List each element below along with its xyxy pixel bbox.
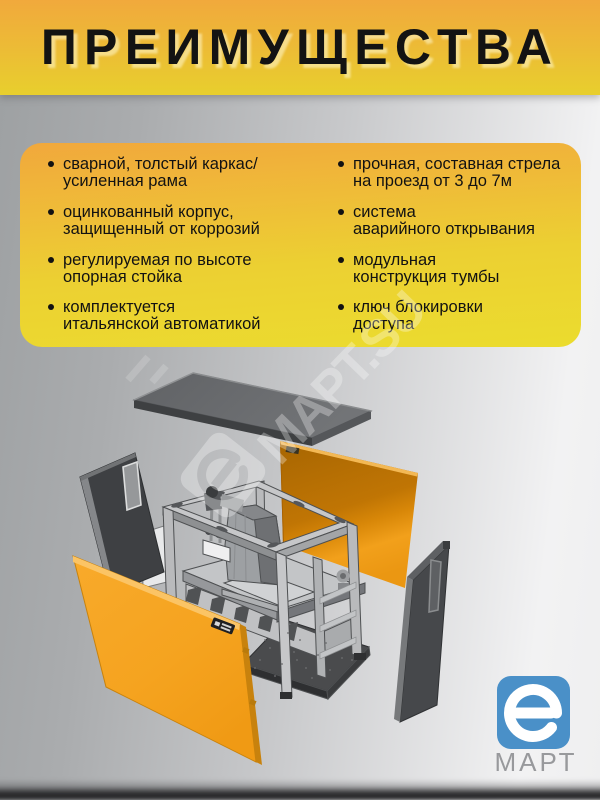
svg-text:МАРТ: МАРТ: [494, 747, 577, 777]
